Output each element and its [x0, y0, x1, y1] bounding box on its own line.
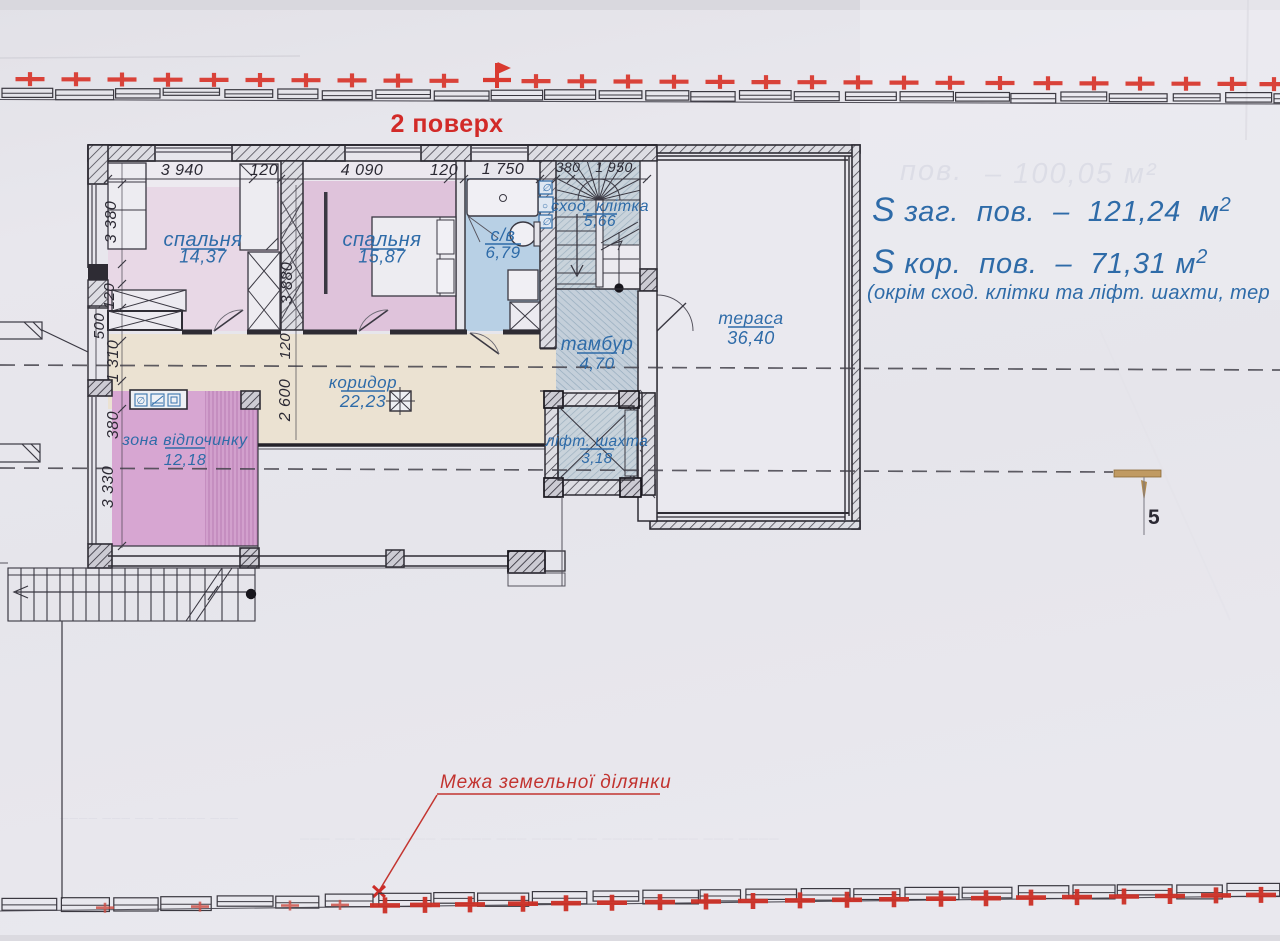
svg-text:36,40: 36,40 — [727, 328, 775, 348]
svg-text:380: 380 — [105, 411, 122, 439]
svg-text:коридор: коридор — [329, 373, 397, 392]
svg-text:22,23: 22,23 — [339, 391, 386, 411]
svg-text:4 090: 4 090 — [341, 162, 384, 179]
svg-text:ліфт. шахта: ліфт. шахта — [545, 433, 649, 450]
svg-text:3 380: 3 380 — [103, 201, 120, 244]
svg-text:∅: ∅ — [542, 217, 552, 228]
svg-text:3,18: 3,18 — [581, 450, 612, 467]
svg-text:1 750: 1 750 — [482, 161, 525, 178]
svg-text:380: 380 — [556, 159, 581, 175]
svg-text:500: 500 — [91, 313, 108, 340]
svg-text:─── ── ──── ─── ───── ───: ─── ── ──── ─── ───── ─── ──── ── ───── … — [299, 831, 780, 846]
svg-text:12,18: 12,18 — [164, 452, 207, 469]
svg-text:15,87: 15,87 — [358, 247, 406, 267]
svg-text:120: 120 — [430, 162, 458, 179]
svg-text:∅: ∅ — [542, 183, 552, 194]
svg-text:тамбур: тамбур — [561, 334, 634, 355]
svg-text:тераса: тераса — [718, 308, 783, 328]
svg-text:3 940: 3 940 — [161, 162, 204, 179]
svg-text:(окрім сход. клітки та ліфт. ш: (окрім сход. клітки та ліфт. шахти, тер — [867, 282, 1270, 304]
svg-text:зона відпочинку: зона відпочинку — [121, 432, 248, 449]
svg-text:3 880: 3 880 — [279, 262, 296, 305]
svg-text:1 950: 1 950 — [595, 159, 633, 175]
svg-text:2 поверх: 2 поверх — [390, 110, 503, 138]
svg-text:Межа земельної ділянки: Межа земельної ділянки — [440, 772, 671, 793]
svg-text:1 310: 1 310 — [105, 340, 122, 383]
svg-text:──── ─── ── ───── ───: ──── ─── ── ───── ─── — [59, 811, 239, 825]
svg-text:S кор. пов. – 71,31 м2: S кор. пов. – 71,31 м2 — [872, 243, 1208, 281]
svg-text:5,66: 5,66 — [584, 213, 616, 230]
svg-text:5: 5 — [1148, 506, 1160, 529]
svg-text:6,79: 6,79 — [485, 243, 520, 262]
svg-text:пов.: пов. — [900, 155, 963, 187]
svg-text:∅: ∅ — [137, 396, 146, 407]
svg-text:○: ○ — [542, 201, 548, 212]
svg-text:3 330: 3 330 — [100, 466, 117, 509]
svg-text:120: 120 — [250, 162, 278, 179]
svg-text:120: 120 — [101, 283, 118, 310]
svg-text:с/в: с/в — [491, 225, 516, 245]
svg-text:120: 120 — [277, 333, 294, 360]
svg-text:14,37: 14,37 — [179, 247, 227, 267]
svg-text:S заг. пов. – 121,24 м2: S заг. пов. – 121,24 м2 — [872, 191, 1232, 229]
svg-text:– 100,05 м²: – 100,05 м² — [984, 158, 1157, 190]
svg-text:2 600: 2 600 — [277, 379, 294, 423]
svg-text:4,70: 4,70 — [579, 354, 614, 373]
